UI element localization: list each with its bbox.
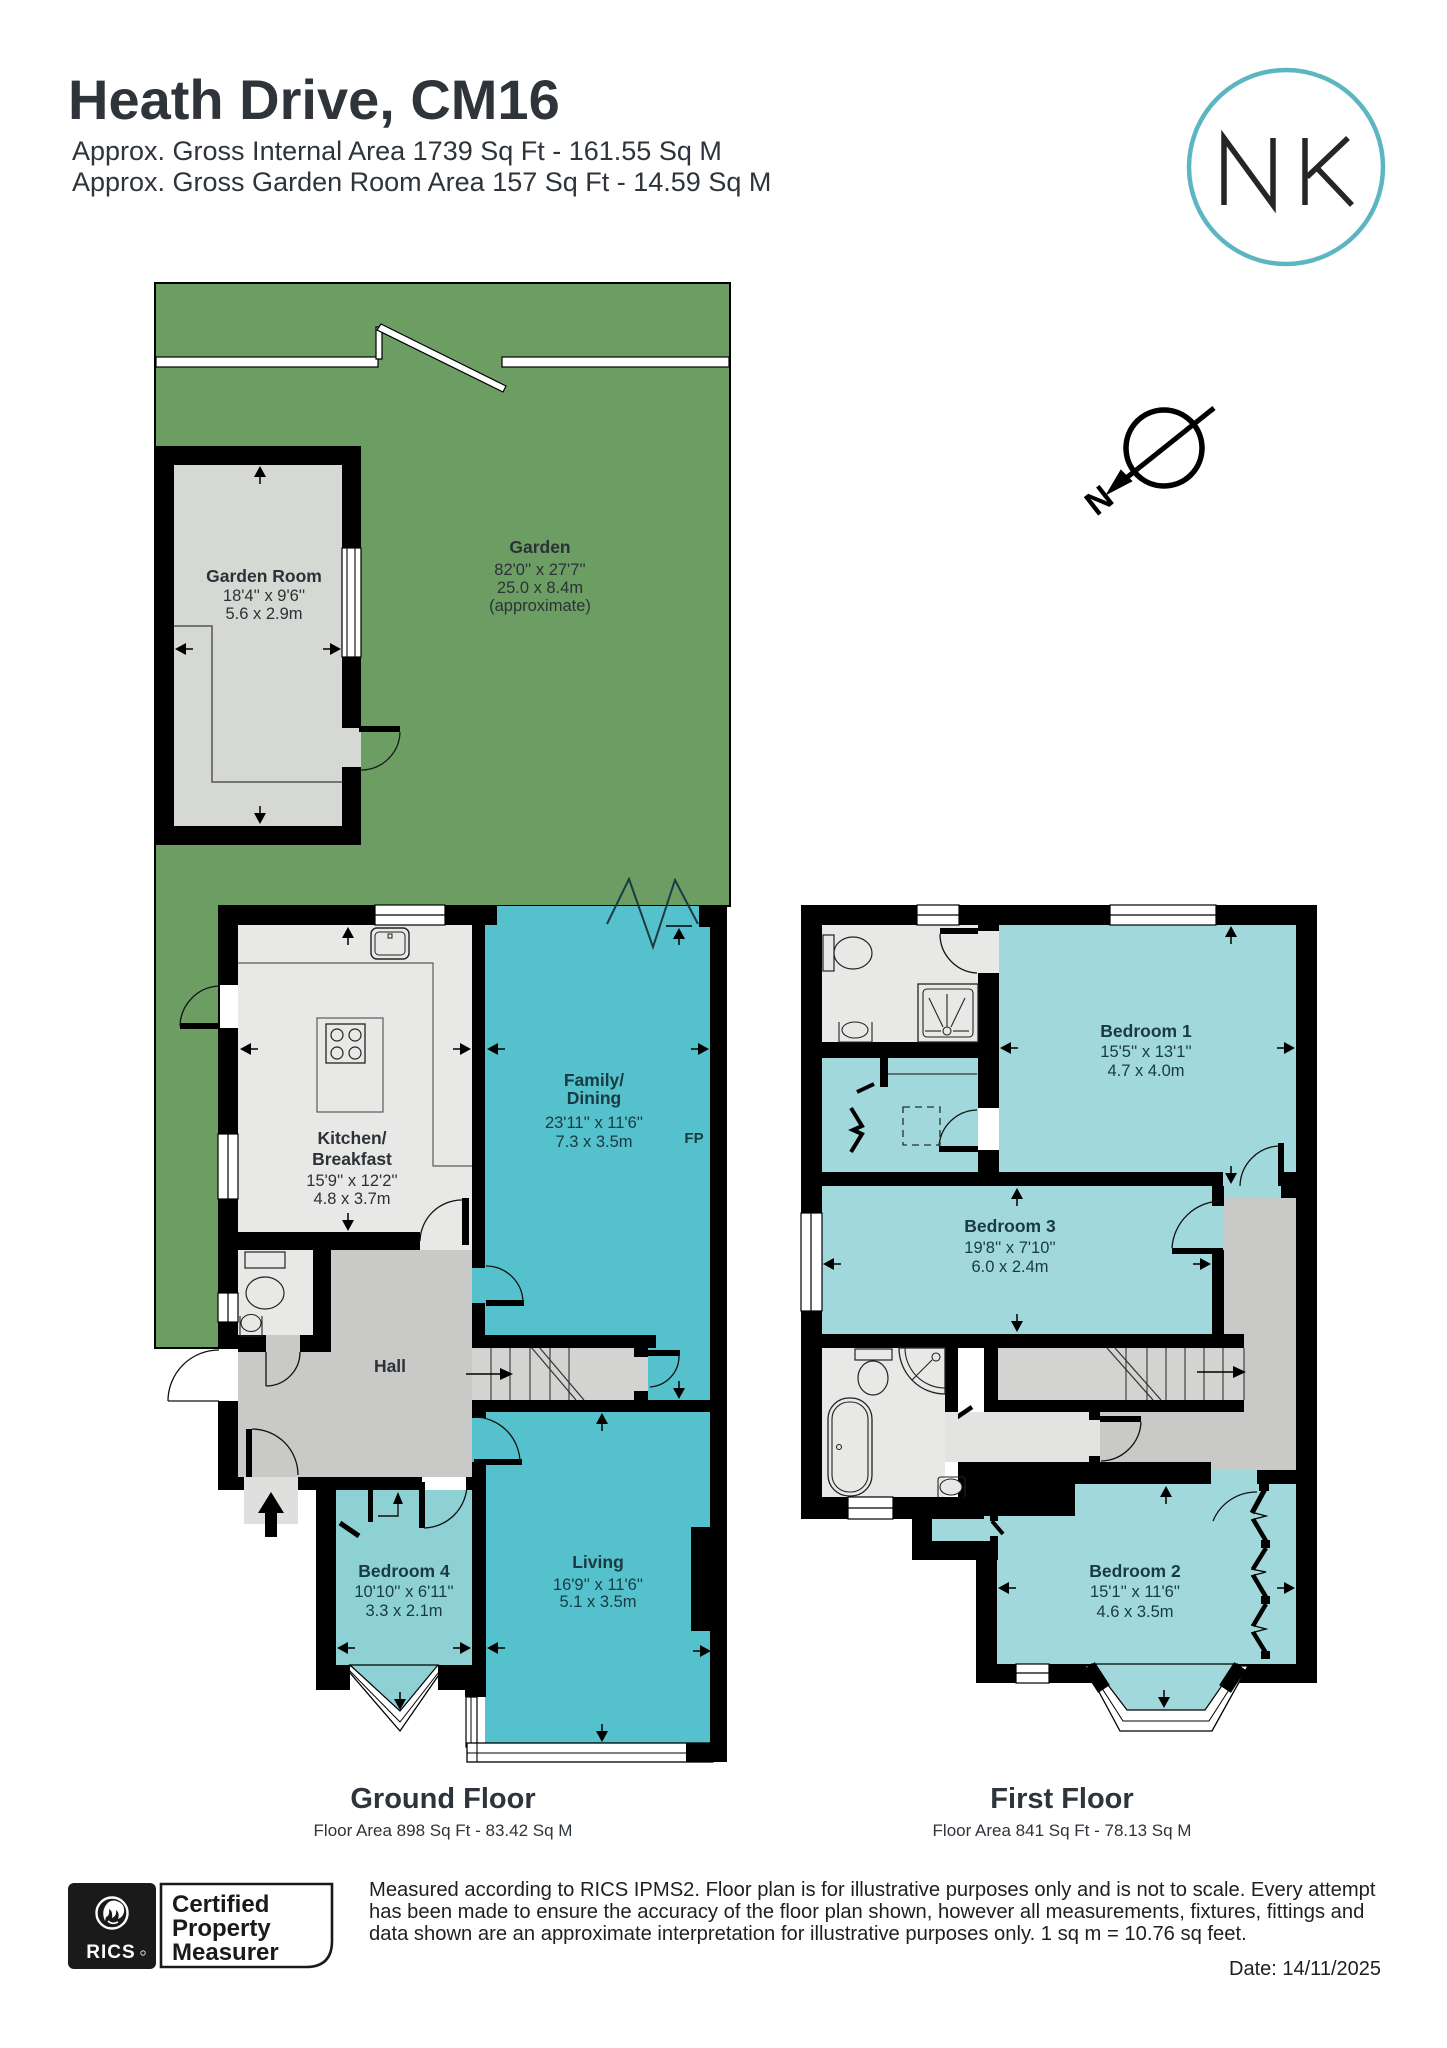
svg-text:Approx. Gross Internal Area 17: Approx. Gross Internal Area 1739 Sq Ft -… xyxy=(72,136,722,166)
svg-text:18'4'' x 9'6'': 18'4'' x 9'6'' xyxy=(223,587,305,605)
svg-text:Heath Drive, CM16: Heath Drive, CM16 xyxy=(68,68,560,131)
svg-text:First Floor: First Floor xyxy=(990,1783,1133,1815)
svg-text:Garden Room: Garden Room xyxy=(206,566,322,586)
svg-text:Measurer: Measurer xyxy=(172,1939,279,1966)
svg-text:3.3 x 2.1m: 3.3 x 2.1m xyxy=(365,1602,442,1620)
svg-text:82'0'' x 27'7'': 82'0'' x 27'7'' xyxy=(494,561,585,579)
svg-text:Hall: Hall xyxy=(374,1356,406,1376)
svg-text:Certified: Certified xyxy=(172,1891,269,1918)
svg-text:25.0 x 8.4m: 25.0 x 8.4m xyxy=(497,579,583,597)
svg-text:10'10'' x 6'11'': 10'10'' x 6'11'' xyxy=(354,1583,453,1601)
svg-text:Garden: Garden xyxy=(509,537,570,557)
svg-text:4.8 x 3.7m: 4.8 x 3.7m xyxy=(313,1190,390,1208)
svg-text:4.7 x 4.0m: 4.7 x 4.0m xyxy=(1107,1062,1184,1080)
svg-text:23'11'' x 11'6'': 23'11'' x 11'6'' xyxy=(545,1114,643,1132)
svg-text:Bedroom 4: Bedroom 4 xyxy=(358,1561,450,1581)
svg-text:Date: 14/11/2025: Date: 14/11/2025 xyxy=(1229,1958,1381,1980)
svg-text:Bedroom 1: Bedroom 1 xyxy=(1100,1021,1192,1041)
svg-text:15'5'' x 13'1'': 15'5'' x 13'1'' xyxy=(1100,1043,1191,1061)
svg-text:Family/: Family/ xyxy=(564,1070,624,1090)
svg-text:Property: Property xyxy=(172,1915,271,1942)
svg-text:Bedroom 3: Bedroom 3 xyxy=(964,1216,1056,1236)
svg-text:4.6 x 3.5m: 4.6 x 3.5m xyxy=(1096,1603,1173,1621)
svg-text:Breakfast: Breakfast xyxy=(312,1149,392,1169)
svg-text:Living: Living xyxy=(572,1552,624,1572)
svg-text:(approximate): (approximate) xyxy=(489,597,591,615)
svg-text:FP: FP xyxy=(684,1130,703,1147)
svg-text:Bedroom 2: Bedroom 2 xyxy=(1089,1561,1181,1581)
svg-text:5.6 x 2.9m: 5.6 x 2.9m xyxy=(225,605,302,623)
svg-text:6.0 x 2.4m: 6.0 x 2.4m xyxy=(971,1258,1048,1276)
svg-text:7.3 x 3.5m: 7.3 x 3.5m xyxy=(555,1133,632,1151)
svg-text:Dining: Dining xyxy=(567,1088,621,1108)
svg-text:19'8'' x 7'10'': 19'8'' x 7'10'' xyxy=(964,1239,1055,1257)
svg-text:data shown are an approximate: data shown are an approximate interpreta… xyxy=(369,1923,1247,1945)
svg-text:5.1 x 3.5m: 5.1 x 3.5m xyxy=(559,1593,636,1611)
svg-text:Approx. Gross Garden Room Area: Approx. Gross Garden Room Area 157 Sq Ft… xyxy=(72,167,771,197)
svg-text:15'1'' x 11'6'': 15'1'' x 11'6'' xyxy=(1090,1583,1180,1601)
svg-text:Ground Floor: Ground Floor xyxy=(350,1783,535,1815)
svg-text:15'9'' x 12'2'': 15'9'' x 12'2'' xyxy=(306,1172,397,1190)
svg-text:Kitchen/: Kitchen/ xyxy=(317,1128,386,1148)
svg-text:Floor Area 841 Sq Ft - 78.13 S: Floor Area 841 Sq Ft - 78.13 Sq M xyxy=(933,1821,1192,1840)
svg-text:Floor Area 898 Sq Ft - 83.42 S: Floor Area 898 Sq Ft - 83.42 Sq M xyxy=(314,1821,573,1840)
svg-text:RICS: RICS xyxy=(86,1942,135,1963)
svg-text:16'9'' x 11'6'': 16'9'' x 11'6'' xyxy=(553,1576,643,1594)
svg-text:has been made to ensure the ac: has been made to ensure the accuracy of … xyxy=(369,1901,1364,1923)
svg-text:Measured according to RICS IPM: Measured according to RICS IPMS2. Floor … xyxy=(369,1879,1376,1901)
